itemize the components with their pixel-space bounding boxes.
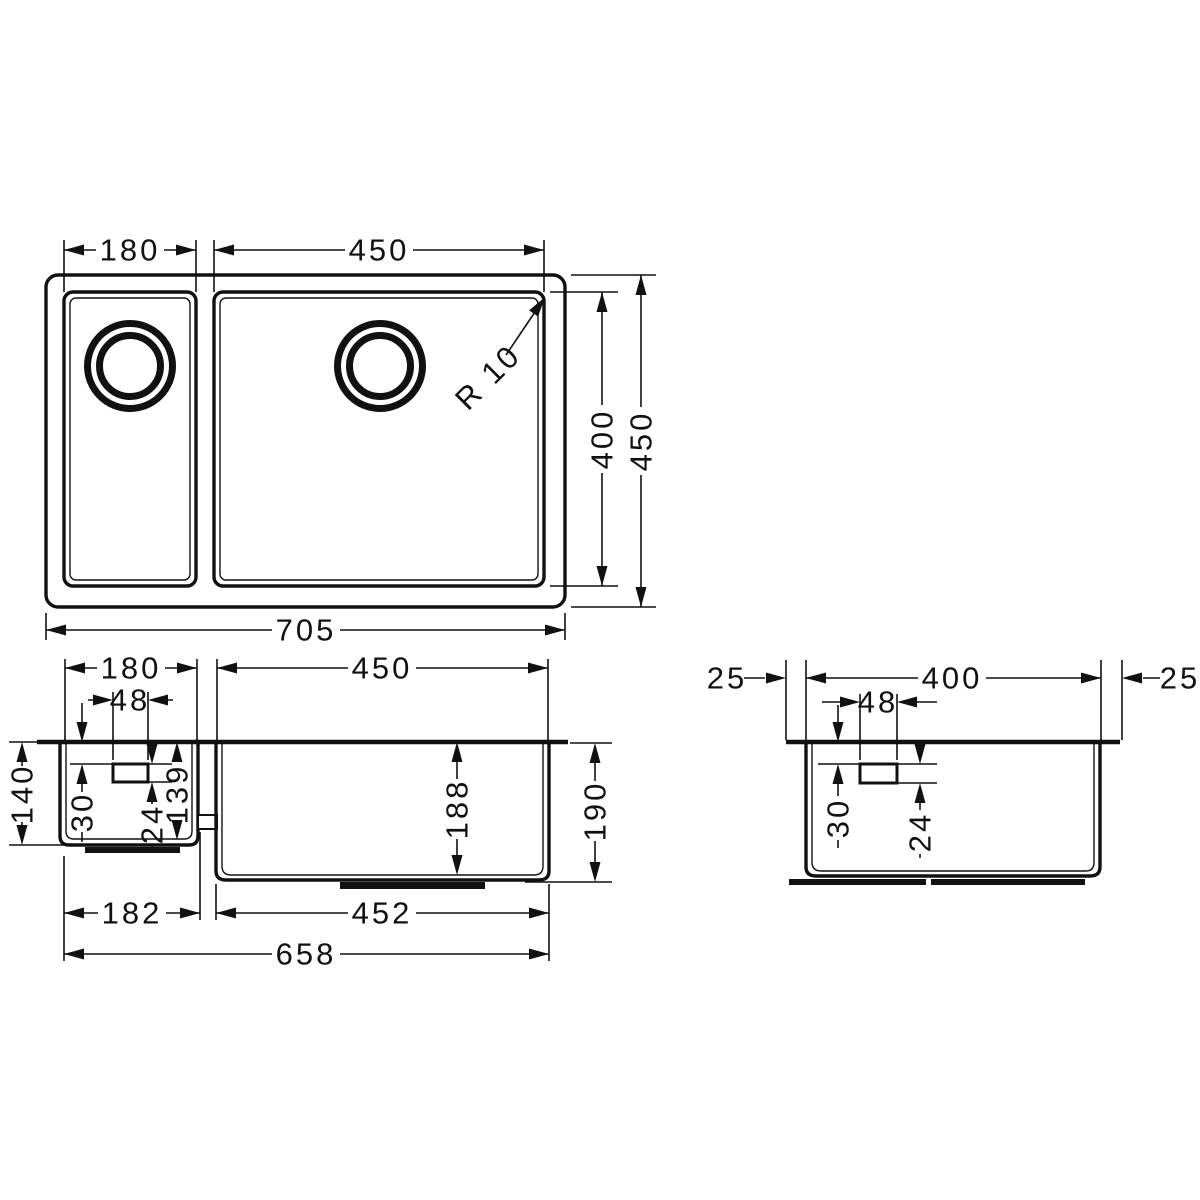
plan-view (46, 275, 565, 607)
front-dim-right-bottom-width: 452 (352, 896, 413, 931)
side-dim-drain-top-offset: 30 (821, 798, 856, 838)
front-dim-drain-top-offset: 30 (65, 792, 100, 832)
front-dim-right-bowl-width: 450 (352, 651, 413, 686)
front-divider-web (198, 815, 217, 829)
front-dim-left-outer-depth: 140 (5, 764, 40, 825)
front-dimensions: 180 450 48 30 24 139 140 188 (5, 651, 613, 972)
plan-dim-right-bowl-width: 450 (349, 233, 410, 268)
side-dim-back-rim: 25 (1160, 661, 1200, 696)
side-dim-front-rim: 25 (707, 661, 747, 696)
side-drain-bar-back (931, 879, 1085, 885)
front-right-bowl (216, 742, 549, 880)
front-dim-left-inner-depth: 139 (160, 764, 195, 825)
front-left-drain-bar (85, 847, 180, 853)
plan-corner-radius-label: R 10 (448, 337, 528, 417)
front-dim-right-inner-depth: 188 (440, 779, 475, 840)
front-right-drain-bar (340, 882, 485, 889)
front-dim-overall-bottom-width: 658 (276, 937, 337, 972)
plan-dim-left-bowl-width: 180 (100, 233, 161, 268)
left-drain-inner-icon (100, 336, 161, 397)
front-right-bowl-inner (222, 742, 543, 875)
side-overflow-box (860, 764, 897, 783)
front-overflow-box (113, 764, 148, 782)
front-dim-left-bottom-width: 182 (102, 896, 163, 931)
side-drain-bar-front (789, 879, 926, 885)
front-dim-right-outer-depth: 190 (578, 781, 613, 842)
plan-right-bowl-inner (220, 298, 538, 580)
plan-dim-overall-width: 705 (276, 613, 337, 648)
plan-dim-inner-length: 400 (585, 409, 620, 470)
side-dimensions: 25 400 25 48 30 24 (707, 660, 1200, 858)
sink-dimension-drawing: 180 450 400 450 705 R 10 (0, 0, 1200, 1200)
right-drain-inner-icon (350, 336, 411, 397)
side-dim-bowl-length: 400 (922, 661, 983, 696)
front-dim-drain-width: 48 (110, 683, 150, 718)
plan-dim-outer-length: 450 (624, 411, 659, 472)
side-dim-drain-width: 48 (858, 685, 898, 720)
front-view (37, 742, 568, 889)
front-dim-left-bowl-width: 180 (101, 651, 162, 686)
side-dim-drain-height: 24 (903, 812, 938, 852)
plan-left-bowl-inner (70, 298, 190, 580)
technical-drawing-page: 180 450 400 450 705 R 10 (0, 0, 1200, 1200)
